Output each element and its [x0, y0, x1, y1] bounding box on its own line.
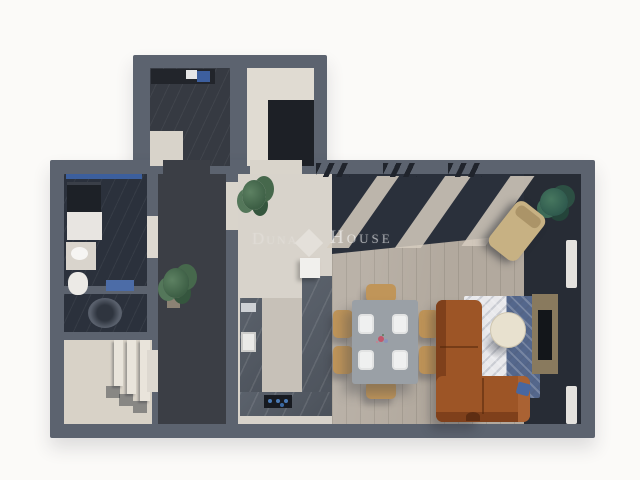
radiator — [566, 240, 577, 288]
cooktop — [264, 395, 292, 408]
watermark-prefix: Duna — [252, 229, 298, 249]
tv-console — [532, 294, 558, 374]
stair-tread — [114, 340, 123, 386]
bath-sink — [71, 247, 88, 260]
kitchen-sink — [241, 332, 256, 352]
fridge — [300, 258, 320, 278]
watermark-text: House — [330, 227, 393, 249]
stair-shadow — [119, 394, 133, 406]
bathroom-window — [66, 174, 142, 179]
stair-tread — [127, 340, 136, 394]
entry-door — [147, 350, 158, 392]
hallway-plant-icon — [163, 268, 189, 298]
washing-machine — [67, 182, 101, 213]
open-window-icon — [316, 163, 350, 177]
sofa-seam — [482, 378, 484, 414]
storage-white-box — [186, 70, 197, 79]
bathroom-door — [147, 216, 158, 258]
kitchen-door-opening — [226, 182, 238, 230]
stair-shadow — [133, 401, 147, 413]
radiator — [566, 386, 577, 424]
place-setting — [392, 350, 408, 370]
door-opening-storage — [163, 160, 210, 174]
cooktop-burners-icon — [268, 399, 272, 403]
place-setting — [358, 350, 374, 370]
place-setting — [358, 314, 374, 334]
sofa-seat-section — [436, 376, 530, 422]
wardrobe-closet — [268, 100, 314, 166]
corner-plant-icon — [540, 188, 568, 216]
round-coffee-table — [490, 312, 526, 348]
bathroom-toilet — [68, 272, 88, 295]
open-window-icon — [383, 163, 417, 177]
place-setting — [392, 314, 408, 334]
dining-chair — [333, 346, 353, 374]
dining-table — [352, 300, 418, 384]
floor-plan-render: Duna House — [0, 0, 640, 480]
wc-toilet — [88, 298, 122, 328]
storage-blue-box — [197, 71, 210, 82]
counter-inset — [241, 303, 256, 312]
door-opening-wardrobe — [250, 160, 302, 174]
open-window-icon — [448, 163, 482, 177]
sofa-seam — [440, 346, 478, 348]
bath-mat — [106, 280, 134, 291]
dryer — [67, 212, 102, 240]
kitchen-plant-icon — [242, 180, 266, 210]
plant-pot — [167, 297, 180, 308]
tv-screen — [538, 310, 552, 360]
sofa-cushion-gap — [466, 412, 480, 421]
dining-chair — [333, 310, 353, 338]
stair-shadow — [106, 386, 120, 398]
kitchen-inner-floor — [262, 298, 302, 392]
table-flowers-icon — [378, 336, 384, 342]
